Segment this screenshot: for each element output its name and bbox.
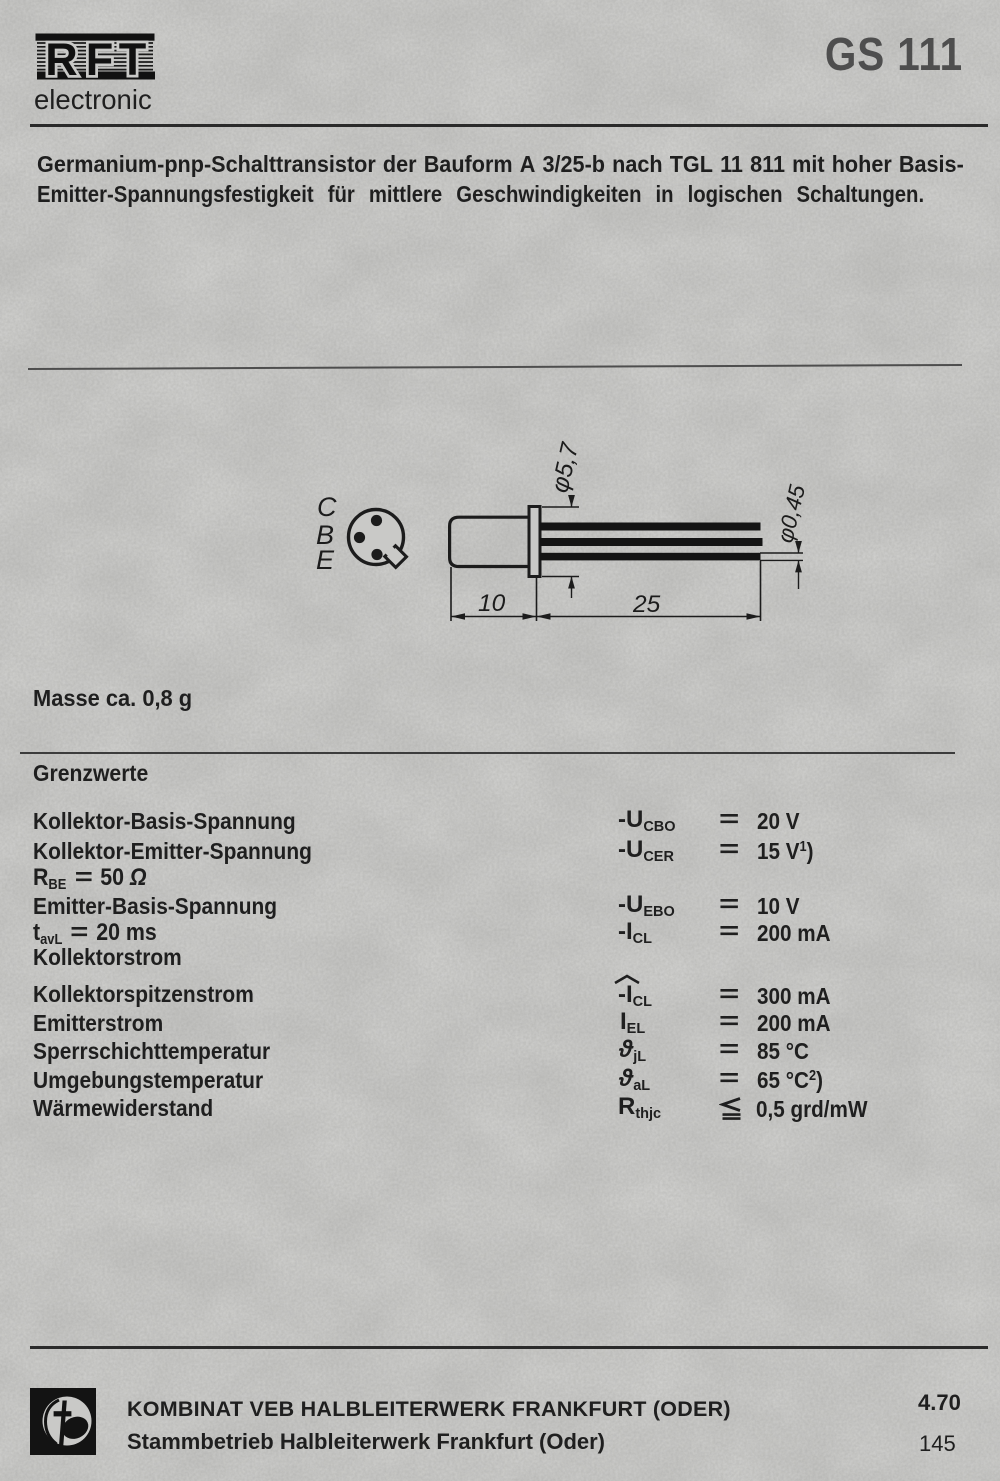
svg-text:E: E (316, 545, 335, 575)
svg-text:φ0,45: φ0,45 (773, 482, 811, 545)
svg-text:R: R (45, 34, 78, 80)
svg-text:φ5,7: φ5,7 (547, 439, 585, 495)
svg-text:25: 25 (632, 591, 661, 618)
svg-text:C: C (317, 492, 337, 522)
svg-text:F: F (86, 34, 114, 80)
svg-text:10: 10 (478, 590, 506, 617)
